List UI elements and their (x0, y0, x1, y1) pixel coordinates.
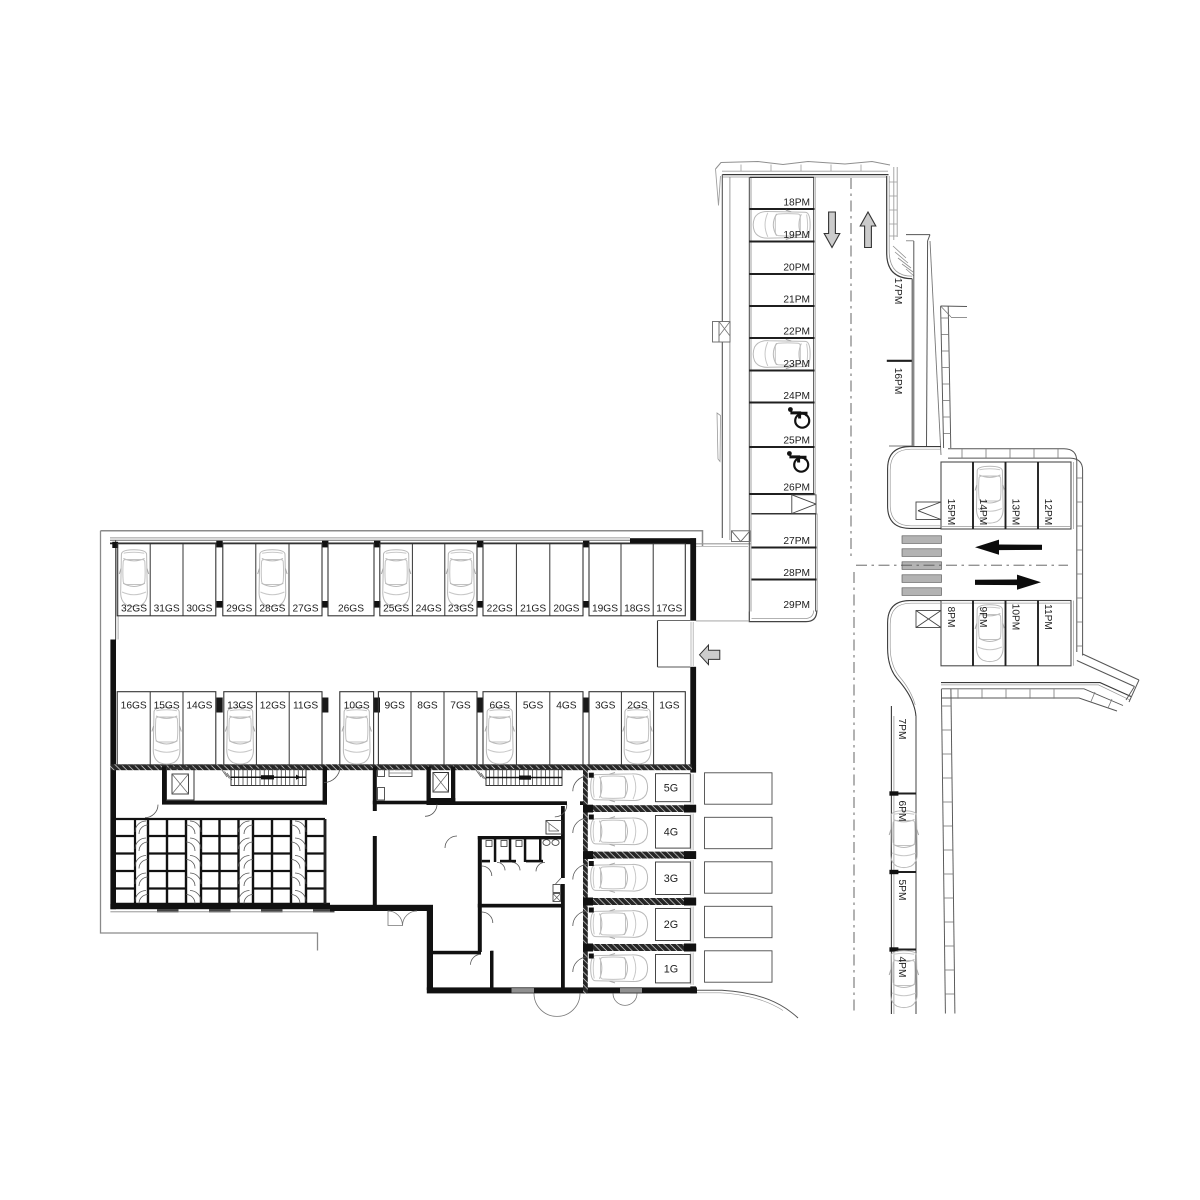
svg-text:24GS: 24GS (416, 604, 442, 615)
svg-text:5G: 5G (664, 782, 678, 794)
svg-text:24PM: 24PM (783, 391, 810, 402)
svg-text:32GS: 32GS (121, 604, 147, 615)
svg-text:22GS: 22GS (487, 604, 513, 615)
svg-text:29PM: 29PM (783, 600, 810, 611)
svg-text:15GS: 15GS (154, 701, 180, 712)
svg-text:7GS: 7GS (450, 701, 471, 712)
svg-text:23PM: 23PM (783, 359, 810, 370)
svg-text:5GS: 5GS (523, 701, 544, 712)
svg-text:23GS: 23GS (448, 604, 474, 615)
svg-text:1G: 1G (664, 963, 678, 975)
svg-text:3GS: 3GS (595, 701, 616, 712)
svg-text:12GS: 12GS (260, 701, 286, 712)
svg-text:18PM: 18PM (783, 198, 810, 209)
svg-text:25PM: 25PM (783, 436, 810, 447)
svg-text:8PM: 8PM (945, 607, 956, 628)
svg-text:4G: 4G (664, 826, 678, 838)
svg-text:30GS: 30GS (186, 604, 212, 615)
svg-text:17PM: 17PM (892, 278, 903, 305)
svg-text:29GS: 29GS (226, 604, 252, 615)
svg-text:9PM: 9PM (977, 607, 988, 628)
svg-text:11GS: 11GS (293, 701, 318, 712)
svg-text:28PM: 28PM (783, 568, 810, 579)
svg-text:21GS: 21GS (520, 604, 546, 615)
svg-text:2G: 2G (664, 919, 678, 931)
svg-text:16GS: 16GS (121, 701, 147, 712)
svg-text:17GS: 17GS (656, 604, 682, 615)
svg-text:11PM: 11PM (1042, 604, 1053, 630)
svg-text:20PM: 20PM (783, 263, 810, 274)
svg-text:22PM: 22PM (783, 327, 810, 338)
svg-text:2GS: 2GS (627, 701, 648, 712)
svg-text:26PM: 26PM (783, 483, 810, 494)
svg-text:12PM: 12PM (1042, 499, 1053, 526)
svg-text:4GS: 4GS (556, 701, 577, 712)
svg-text:13GS: 13GS (227, 701, 253, 712)
svg-text:14GS: 14GS (186, 701, 212, 712)
svg-text:9GS: 9GS (385, 701, 406, 712)
svg-text:19GS: 19GS (592, 604, 618, 615)
svg-text:14PM: 14PM (977, 499, 988, 526)
svg-text:25GS: 25GS (383, 604, 409, 615)
svg-text:15PM: 15PM (945, 499, 956, 526)
svg-text:13PM: 13PM (1009, 499, 1020, 526)
svg-text:1GS: 1GS (659, 701, 680, 712)
svg-text:3G: 3G (664, 873, 678, 885)
svg-text:18GS: 18GS (624, 604, 650, 615)
svg-text:10PM: 10PM (1009, 604, 1020, 631)
svg-text:19PM: 19PM (783, 230, 810, 241)
svg-text:31GS: 31GS (154, 604, 180, 615)
svg-text:4PM: 4PM (896, 957, 907, 978)
svg-text:10GS: 10GS (344, 701, 370, 712)
svg-text:16PM: 16PM (892, 368, 903, 395)
svg-text:28GS: 28GS (259, 604, 285, 615)
svg-text:5PM: 5PM (896, 880, 907, 901)
svg-text:27PM: 27PM (783, 536, 810, 547)
svg-text:7PM: 7PM (896, 719, 907, 740)
svg-text:6PM: 6PM (896, 801, 907, 822)
svg-text:26GS: 26GS (338, 604, 364, 615)
svg-text:8GS: 8GS (417, 701, 438, 712)
svg-text:27GS: 27GS (292, 604, 318, 615)
svg-text:21PM: 21PM (783, 295, 810, 306)
svg-text:20GS: 20GS (553, 604, 579, 615)
svg-text:6GS: 6GS (490, 701, 511, 712)
